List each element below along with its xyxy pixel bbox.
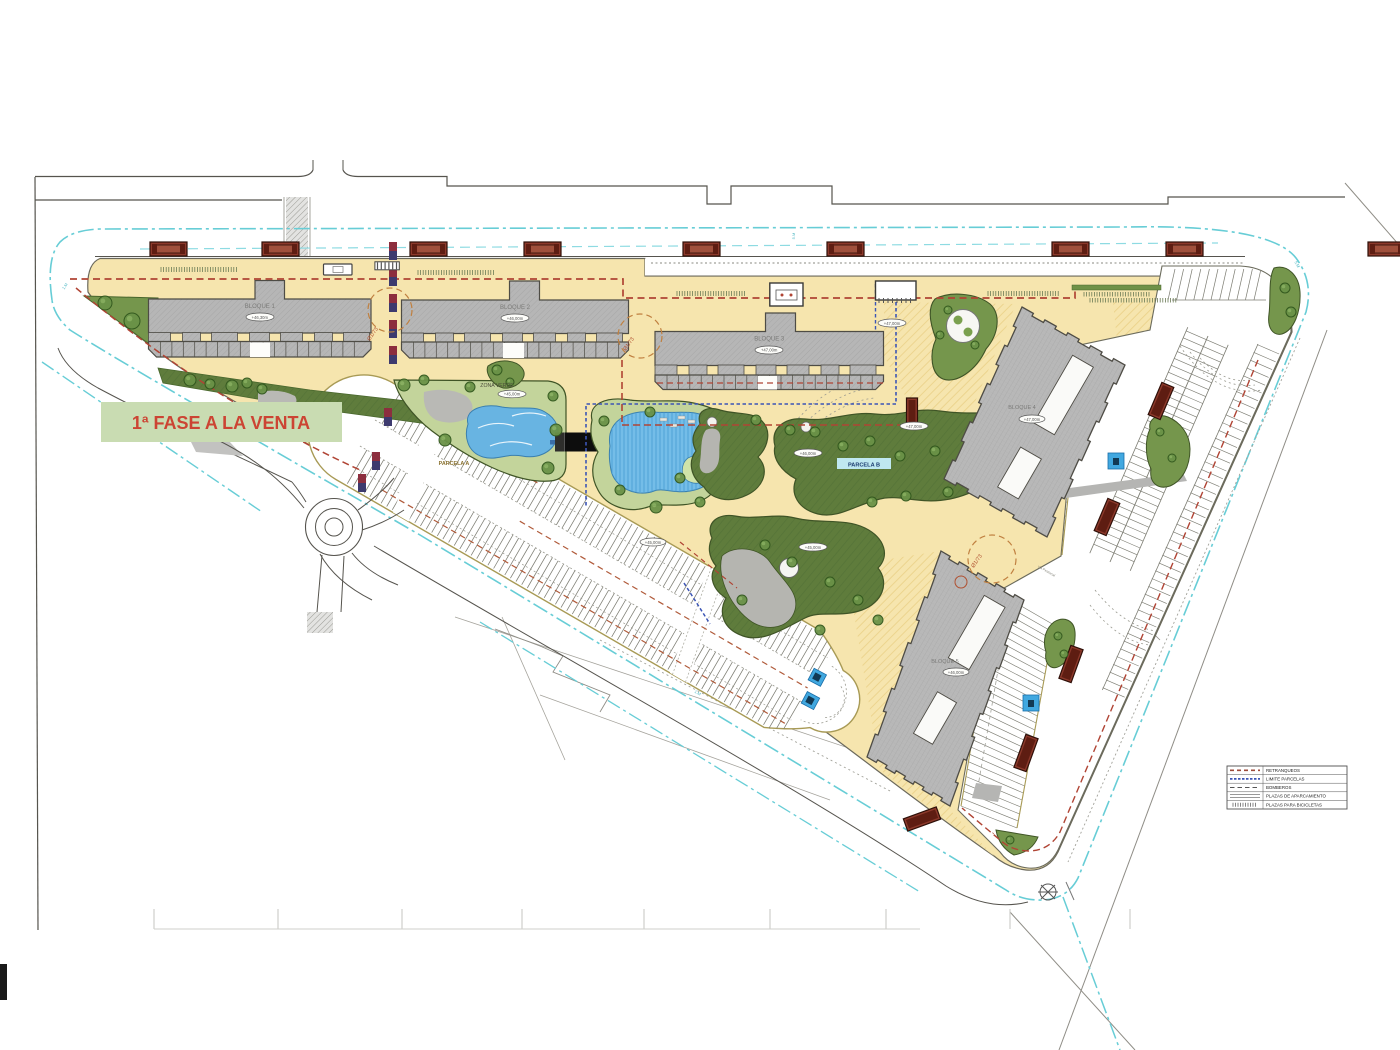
- svg-text:LIMITE PARCELAS: LIMITE PARCELAS: [1266, 777, 1305, 782]
- svg-text:+45,00m: +45,00m: [805, 545, 822, 550]
- svg-text:+46,30m: +46,30m: [252, 315, 269, 320]
- svg-text:RETRANQUEOS: RETRANQUEOS: [1266, 768, 1300, 773]
- svg-text:+47,00m: +47,00m: [884, 321, 901, 326]
- svg-text:BLOQUE 3: BLOQUE 3: [754, 337, 785, 343]
- svg-text:+47,00m: +47,00m: [1024, 417, 1041, 422]
- svg-text:PARCELA A: PARCELA A: [439, 461, 470, 467]
- svg-text:+47,00m: +47,00m: [906, 424, 923, 429]
- svg-text:+46,00m: +46,00m: [800, 451, 817, 456]
- svg-text:BLOQUE 2: BLOQUE 2: [500, 305, 531, 311]
- svg-text:+46,00m: +46,00m: [948, 670, 965, 675]
- svg-text:+47,00m: +47,00m: [761, 347, 778, 352]
- svg-text:ZONA VERDE: ZONA VERDE: [480, 383, 514, 389]
- svg-text:BLOQUE 1: BLOQUE 1: [245, 304, 276, 310]
- svg-text:BLOQUE 4: BLOQUE 4: [1008, 405, 1036, 411]
- svg-text:BLOQUE 5: BLOQUE 5: [931, 659, 959, 665]
- svg-text:BOMBEROS: BOMBEROS: [1266, 785, 1291, 790]
- svg-text:5.M: 5.M: [791, 233, 796, 240]
- svg-text:PLAZAS PARA BICICLETAS: PLAZAS PARA BICICLETAS: [1266, 802, 1322, 807]
- svg-text:+46,00m: +46,00m: [507, 316, 524, 321]
- svg-text:1ª FASE A LA VENTA: 1ª FASE A LA VENTA: [132, 413, 310, 433]
- svg-text:PLAZAS DE APARCAMIENTO: PLAZAS DE APARCAMIENTO: [1266, 794, 1326, 799]
- svg-text:+45,00m: +45,00m: [645, 540, 662, 545]
- svg-text:PARCELA B: PARCELA B: [848, 463, 880, 469]
- svg-text:+45,00m: +45,00m: [504, 392, 521, 397]
